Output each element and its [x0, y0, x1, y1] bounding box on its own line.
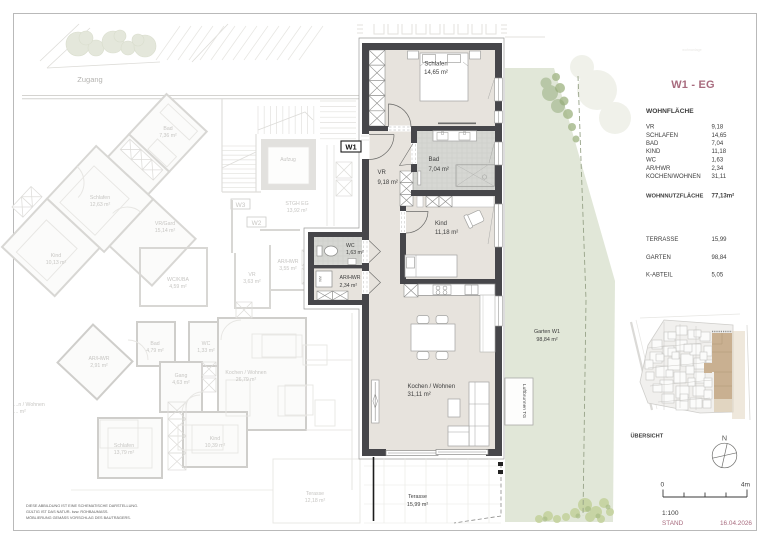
svg-text:Kind: Kind	[210, 436, 220, 442]
svg-text:15,14 m²: 15,14 m²	[155, 228, 176, 234]
svg-text:ÜBERSICHT: ÜBERSICHT	[631, 433, 664, 440]
svg-text:N: N	[722, 434, 727, 443]
svg-text:11,18: 11,18	[712, 149, 727, 155]
svg-text:MÖBLIERUNG GEMÄSS VORSCHLAG DE: MÖBLIERUNG GEMÄSS VORSCHLAG DES BAUTRÄGE…	[26, 516, 131, 520]
svg-text:W3: W3	[236, 202, 246, 209]
svg-text:15,99: 15,99	[712, 237, 728, 243]
svg-text:VR: VR	[378, 170, 387, 176]
svg-text:4,59 m²: 4,59 m²	[169, 284, 187, 290]
svg-text:12,18 m²: 12,18 m²	[305, 498, 326, 504]
svg-text:W2: W2	[252, 220, 262, 227]
svg-text:Terasse: Terasse	[408, 494, 427, 500]
svg-text:Aufzug: Aufzug	[280, 157, 296, 163]
svg-text:WOHNFLÄCHE: WOHNFLÄCHE	[646, 107, 694, 115]
svg-text:10,13 m²: 10,13 m²	[46, 260, 67, 266]
svg-text:GARTEN: GARTEN	[646, 255, 671, 261]
svg-text:Kochen / Wohnen: Kochen / Wohnen	[408, 384, 456, 390]
svg-text:Luftbrunnen TG: Luftbrunnen TG	[521, 384, 527, 418]
svg-text:Kochen / Wohnen: Kochen / Wohnen	[225, 370, 266, 376]
svg-text:0: 0	[661, 482, 665, 489]
svg-text:VR: VR	[248, 272, 255, 278]
svg-text:3,63 m²: 3,63 m²	[243, 279, 261, 285]
svg-text:31,11 m²: 31,11 m²	[408, 392, 431, 398]
svg-text:AR/HWR: AR/HWR	[88, 356, 109, 362]
svg-text:SCHLAFEN: SCHLAFEN	[646, 133, 678, 139]
svg-text:2,91 m²: 2,91 m²	[90, 363, 108, 369]
svg-text:9,18: 9,18	[712, 125, 724, 131]
svg-text:26,79 m²: 26,79 m²	[236, 377, 257, 383]
svg-text:2,34 m²: 2,34 m²	[340, 283, 358, 289]
svg-text:Schlafen: Schlafen	[424, 62, 447, 68]
svg-text:Bad: Bad	[150, 341, 159, 347]
svg-text:12,63 m²: 12,63 m²	[90, 202, 111, 208]
svg-text:5,05: 5,05	[712, 273, 724, 279]
svg-text:TERRASSE: TERRASSE	[646, 237, 678, 243]
svg-text:Zugang: Zugang	[77, 75, 102, 84]
svg-text:AR/HWR: AR/HWR	[277, 259, 298, 265]
svg-text:3,55 m²: 3,55 m²	[279, 266, 297, 272]
svg-text:BAD: BAD	[646, 141, 659, 147]
svg-text:VR/Gard: VR/Gard	[155, 221, 175, 227]
svg-text:W1: W1	[345, 143, 356, 152]
svg-text:98,84: 98,84	[712, 255, 728, 261]
svg-text:AR/HWR: AR/HWR	[340, 275, 361, 281]
svg-text:4,63 m²: 4,63 m²	[172, 380, 190, 386]
svg-text:11,18 m²: 11,18 m²	[435, 230, 458, 236]
svg-text:7,36 m²: 7,36 m²	[159, 133, 177, 139]
svg-text:WC: WC	[646, 158, 657, 164]
svg-text:15,99 m²: 15,99 m²	[407, 502, 428, 508]
svg-text:7,04 m²: 7,04 m²	[429, 167, 449, 173]
svg-text:16.04.2026: 16.04.2026	[720, 520, 752, 527]
svg-text:WC/K/BA: WC/K/BA	[167, 277, 189, 283]
svg-text:1,33 m²: 1,33 m²	[197, 348, 215, 354]
svg-text:14,65 m²: 14,65 m²	[424, 70, 448, 76]
svg-text:AR/HWR: AR/HWR	[646, 166, 671, 172]
svg-text:KOCHEN/WOHNEN: KOCHEN/WOHNEN	[646, 174, 701, 180]
svg-text:2,34: 2,34	[712, 166, 724, 172]
svg-text:Bad: Bad	[429, 157, 440, 163]
svg-text:W1 - EG: W1 - EG	[671, 79, 715, 91]
svg-text:10,39 m²: 10,39 m²	[205, 443, 226, 449]
svg-text:WOHNNUTZFLÄCHE: WOHNNUTZFLÄCHE	[646, 193, 703, 200]
svg-text:KIND: KIND	[646, 149, 661, 155]
svg-text:WC: WC	[202, 341, 211, 347]
svg-text:13,92 m²: 13,92 m²	[287, 208, 308, 214]
svg-text:9,18 m²: 9,18 m²	[378, 180, 398, 186]
svg-text:Schlafen: Schlafen	[90, 195, 110, 201]
svg-text:... m²: ... m²	[14, 409, 26, 415]
svg-text:4m: 4m	[741, 482, 751, 489]
svg-text:WM: WM	[319, 276, 323, 282]
svg-text:1,63 m²: 1,63 m²	[346, 250, 364, 256]
svg-text:DIESE ABBILDUNG IST EINE SCHEM: DIESE ABBILDUNG IST EINE SCHEMATISCHE DA…	[26, 504, 138, 508]
svg-text:Bad: Bad	[163, 126, 172, 132]
svg-text:Gang: Gang	[175, 373, 188, 379]
svg-text:wohnanlage: wohnanlage	[682, 48, 701, 52]
svg-text:Garten W1: Garten W1	[534, 329, 560, 335]
svg-text:1,63: 1,63	[712, 158, 724, 164]
svg-text:14,65: 14,65	[712, 133, 728, 139]
svg-text:Kind: Kind	[435, 221, 447, 227]
svg-text:1:100: 1:100	[662, 510, 679, 517]
svg-text:STAND: STAND	[662, 520, 684, 527]
svg-text:31,11: 31,11	[712, 174, 727, 180]
svg-text:Kind: Kind	[51, 253, 61, 259]
svg-text:K-ABTEIL: K-ABTEIL	[646, 273, 673, 279]
svg-text:Terasse: Terasse	[306, 491, 324, 497]
svg-text:WC: WC	[346, 243, 355, 249]
svg-text:77,13m²: 77,13m²	[712, 193, 735, 200]
svg-text:13,79 m²: 13,79 m²	[114, 450, 135, 456]
svg-text:STGH EG: STGH EG	[285, 201, 308, 207]
svg-text:7,04: 7,04	[712, 141, 724, 147]
svg-text:VR: VR	[646, 125, 655, 131]
svg-text:98,84 m²: 98,84 m²	[536, 337, 557, 343]
svg-text:GÜLTIG IST DAS NATUR- bzw. ROH: GÜLTIG IST DAS NATUR- bzw. ROHBAUMASS.	[26, 510, 109, 514]
svg-text:...n / Wohnen: ...n / Wohnen	[14, 402, 45, 408]
svg-text:4,79 m²: 4,79 m²	[146, 348, 164, 354]
